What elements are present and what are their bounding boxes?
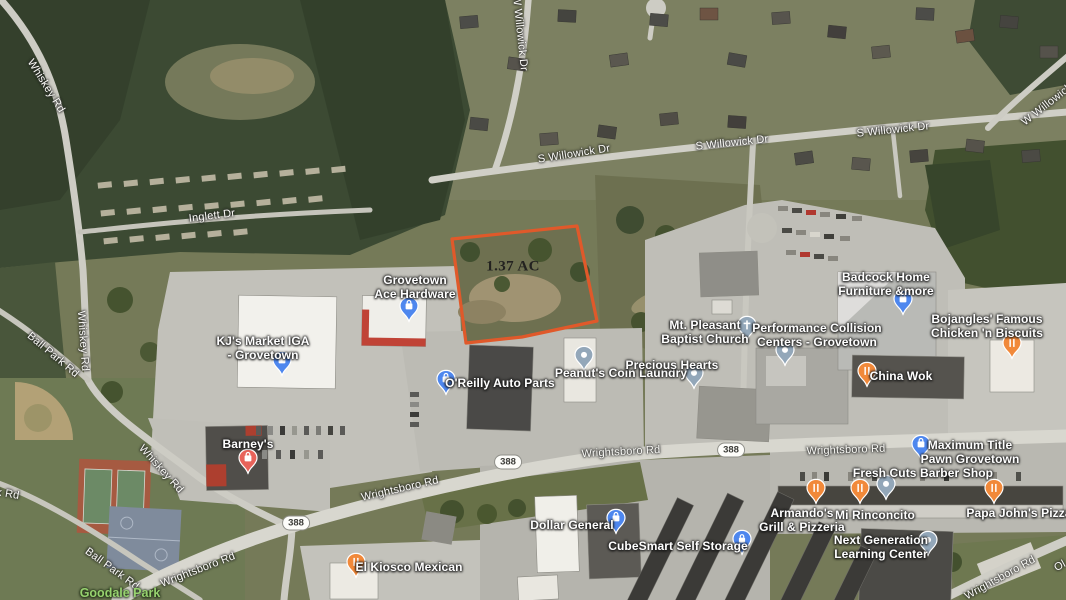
maximum-title-label-line: Pawn Grovetown	[921, 453, 1020, 467]
performance-label-line: Performance Collision	[752, 322, 881, 336]
armandos-label[interactable]: Armando'sGrill & Pizzeria	[759, 507, 845, 535]
maximum-title-label-line: Maximum Title	[921, 439, 1020, 453]
precious-hearts-label-line: Precious Hearts	[626, 359, 719, 373]
armandos-label-line: Grill & Pizzeria	[759, 521, 845, 535]
armandos-label-line: Armando's	[759, 507, 845, 521]
fresh-cuts-label-line: Fresh Cuts Barber Shop	[853, 467, 993, 481]
maximum-title-label[interactable]: Maximum TitlePawn Grovetown	[921, 439, 1020, 467]
papa-johns-pin[interactable]	[984, 478, 1004, 504]
satellite-map[interactable]: 1.37 AC KJ's Market IGA- GrovetownGrovet…	[0, 0, 1066, 600]
papa-johns-label-line: Papa John's Pizza	[966, 507, 1066, 521]
mt-pleasant-label[interactable]: Mt. PleasantBaptist Church	[661, 319, 748, 347]
barneys-label-line: Barney's	[222, 438, 273, 452]
badcock-label-line: Furniture &more	[838, 285, 934, 299]
badcock-label-line: Badcock Home	[838, 271, 934, 285]
badcock-label[interactable]: Badcock HomeFurniture &more	[838, 271, 934, 299]
ace-hardware-label-line: Ace Hardware	[374, 288, 455, 302]
cubesmart-label-line: CubeSmart Self Storage	[608, 540, 748, 554]
performance-label[interactable]: Performance CollisionCenters - Grovetown	[752, 322, 881, 350]
next-generation-label-line: Next Generation	[834, 534, 928, 548]
bojangles-label[interactable]: Bojangles' FamousChicken 'n Biscuits	[931, 313, 1043, 341]
fresh-cuts-label[interactable]: Fresh Cuts Barber Shop	[853, 467, 993, 481]
china-wok-label[interactable]: China Wok	[870, 370, 933, 384]
route-shield-388: 388	[282, 516, 310, 531]
oreilly-label[interactable]: O'Reilly Auto Parts	[445, 377, 555, 391]
ace-hardware-label[interactable]: GrovetownAce Hardware	[374, 274, 455, 302]
bojangles-label-line: Bojangles' Famous	[931, 313, 1043, 327]
route-shield-388: 388	[494, 455, 522, 470]
mt-pleasant-label-line: Baptist Church	[661, 333, 748, 347]
kjs-market-label[interactable]: KJ's Market IGA- Grovetown	[216, 335, 309, 363]
mi-rinconcito-label-line: Mi Rinconcito	[835, 509, 915, 523]
dollar-general-label[interactable]: Dollar General	[530, 519, 613, 533]
ace-hardware-label-line: Grovetown	[374, 274, 455, 288]
kjs-market-label-line: KJ's Market IGA	[216, 335, 309, 349]
route-shield-388: 388	[717, 443, 745, 458]
papa-johns-label[interactable]: Papa John's Pizza	[966, 507, 1066, 521]
barneys-label[interactable]: Barney's	[222, 438, 273, 452]
el-kiosco-label-line: El Kiosco Mexican	[355, 561, 462, 575]
precious-hearts-label[interactable]: Precious Hearts	[626, 359, 719, 373]
mt-pleasant-label-line: Mt. Pleasant	[661, 319, 748, 333]
next-generation-label[interactable]: Next GenerationLearning Center	[834, 534, 928, 562]
armandos-pin[interactable]	[806, 478, 826, 504]
cubesmart-label[interactable]: CubeSmart Self Storage	[608, 540, 748, 554]
park-label[interactable]: Goodale Park	[80, 586, 161, 600]
kjs-market-label-line: - Grovetown	[216, 349, 309, 363]
next-generation-label-line: Learning Center	[834, 548, 928, 562]
mi-rinconcito-pin[interactable]	[850, 478, 870, 504]
dollar-general-label-line: Dollar General	[530, 519, 613, 533]
barneys-pin[interactable]	[238, 448, 258, 474]
mi-rinconcito-label[interactable]: Mi Rinconcito	[835, 509, 915, 523]
bojangles-label-line: Chicken 'n Biscuits	[931, 327, 1043, 341]
parcel-outline	[452, 226, 597, 343]
oreilly-label-line: O'Reilly Auto Parts	[445, 377, 555, 391]
china-wok-label-line: China Wok	[870, 370, 933, 384]
parcel-area-label: 1.37 AC	[486, 259, 540, 276]
performance-label-line: Centers - Grovetown	[752, 336, 881, 350]
el-kiosco-label[interactable]: El Kiosco Mexican	[355, 561, 462, 575]
